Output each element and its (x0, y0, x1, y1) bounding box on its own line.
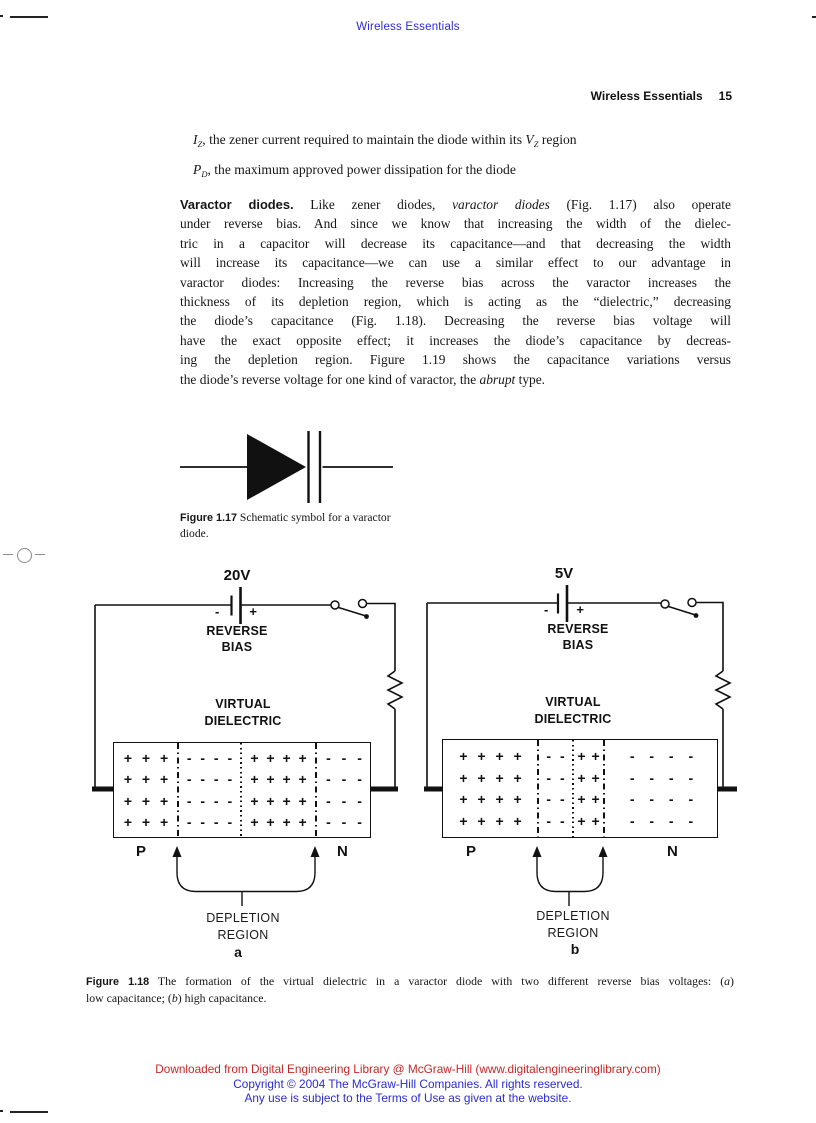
block-b-p-region: + + + + + + + + + + + + + + + + (443, 740, 538, 837)
crop-mark-bottom-left-dot (0, 1110, 3, 1112)
footer-download-line: Downloaded from Digital Engineering Libr… (0, 1062, 816, 1077)
semiconductor-block-a: + + + + + + + + + + + + - - - - - - - - … (113, 742, 371, 838)
circuit-a-depletion-region-label: DEPLETION REGION (193, 910, 293, 944)
arrow-up-icon (599, 846, 608, 857)
resistor-icon (716, 671, 730, 709)
circuit-b-n-label: N (667, 843, 678, 860)
footer-notice: Downloaded from Digital Engineering Libr… (0, 1062, 816, 1106)
plus-sign: + (249, 604, 257, 619)
crop-mark-top-right-dot (812, 16, 816, 18)
switch-icon (661, 599, 698, 618)
subfigure-a-tag: a (230, 944, 246, 960)
circuit-b-virtual-dielectric-label: VIRTUAL DIELECTRIC (523, 694, 623, 728)
circuit-a-virtual-dielectric-label: VIRTUAL DIELECTRIC (193, 696, 293, 730)
block-b-depletion-positive: + + + + + + + + (573, 740, 604, 837)
block-a-depletion-positive: + + + + + + + + + + + + + + + + (241, 743, 316, 837)
book-page: { "colors": { "ink": "#161616", "header_… (0, 0, 816, 1123)
depletion-boundary-line (603, 740, 605, 837)
figure-1-17-caption: Figure 1.17 Schematic symbol for a varac… (180, 510, 442, 541)
block-b-depletion-negative: - - - - - - - - (538, 740, 573, 837)
minus-sign: - (215, 604, 219, 619)
semiconductor-block-b: + + + + + + + + + + + + + + + + - - - - … (442, 739, 718, 838)
figure-1-18-caption: Figure 1.18 The formation of the virtual… (86, 973, 734, 1007)
depletion-bracket (533, 846, 608, 906)
block-a-depletion-negative: - - - - - - - - - - - - - - - - (178, 743, 241, 837)
subfigure-b-tag: b (567, 941, 583, 957)
crop-mark-top-left-line (10, 16, 48, 18)
switch-icon (331, 600, 369, 619)
circuit-a-battery-polarity: - + (215, 604, 257, 619)
circuit-b-battery-polarity: - + (544, 602, 584, 617)
arrow-up-icon (173, 846, 182, 857)
junction-line (240, 743, 242, 837)
circuit-b-voltage: 5V (534, 565, 594, 582)
depletion-boundary-line (537, 740, 539, 837)
depletion-boundary-line (315, 743, 317, 837)
running-head-title: Wireless Essentials (591, 89, 703, 103)
footer-terms-line: Any use is subject to the Terms of Use a… (0, 1091, 816, 1106)
plus-sign: + (576, 602, 584, 617)
junction-line (572, 740, 574, 837)
circuit-a-p-label: P (136, 843, 146, 860)
varactor-symbol-figure (172, 425, 402, 510)
depletion-bracket (173, 846, 320, 906)
block-a-n-region: - - - - - - - - - - - - (316, 743, 372, 837)
arrow-up-icon (311, 846, 320, 857)
registration-mark-left (3, 548, 47, 562)
circuit-b-depletion-region-label: DEPLETION REGION (523, 908, 623, 942)
block-a-p-region: + + + + + + + + + + + + (114, 743, 178, 837)
arrow-up-icon (533, 846, 542, 857)
crop-mark-bottom-left-line (10, 1111, 48, 1113)
page-top-title: Wireless Essentials (0, 21, 816, 33)
circuit-b-p-label: P (466, 843, 476, 860)
circuit-a-reverse-bias-label: REVERSE BIAS (197, 623, 277, 655)
minus-sign: - (544, 602, 548, 617)
depletion-boundary-line (177, 743, 179, 837)
footer-copyright-line: Copyright © 2004 The McGraw-Hill Compani… (0, 1077, 816, 1092)
resistor-icon (388, 671, 402, 709)
zener-parameter-lines: IZ, the zener current required to mainta… (193, 127, 738, 187)
circuit-a-n-label: N (337, 843, 348, 860)
page-number: 15 (719, 89, 732, 103)
circuit-a-voltage: 20V (207, 567, 267, 584)
varactor-diode-symbol-icon (180, 431, 393, 503)
running-head: Wireless Essentials15 (591, 89, 732, 103)
crop-mark-top-left-dot (0, 15, 3, 17)
varactor-diodes-paragraph: Varactor diodes. Like zener diodes, vara… (180, 195, 731, 389)
circuit-b-reverse-bias-label: REVERSE BIAS (538, 621, 618, 653)
block-b-n-region: - - - - - - - - - - - - - - - - (604, 740, 719, 837)
